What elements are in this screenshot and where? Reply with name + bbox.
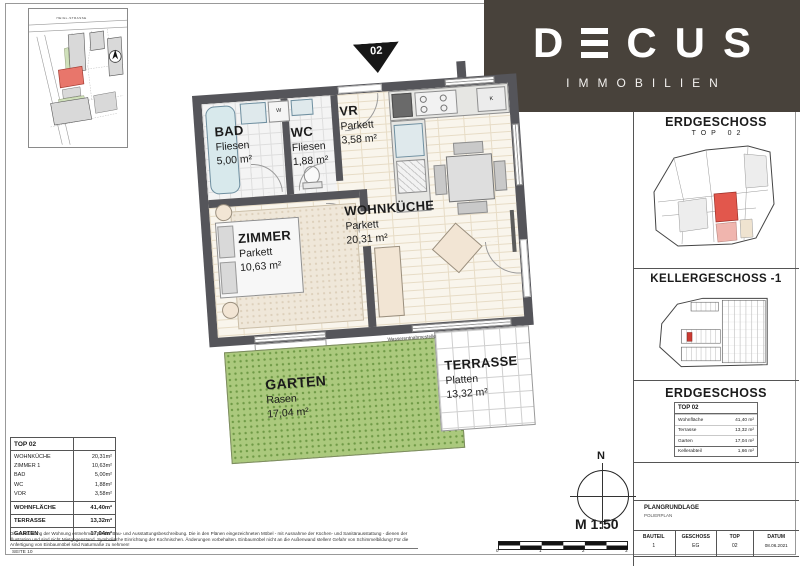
field-value: 02	[717, 543, 753, 549]
field-label: GESCHOSS	[676, 534, 717, 540]
unit-table-row: Kellerabteil 1,66 m²	[675, 446, 757, 457]
unit-summary-table: TOP 02 Wohnfläche 41,40 m² Terrasse 13,3…	[674, 402, 758, 457]
row-value: 1,66 m²	[738, 449, 754, 456]
wc-area: 1,88 m²	[292, 154, 328, 168]
unit-table-row: Terrasse 13,32 m²	[675, 425, 757, 436]
room-label-bad: BAD Fliesen 5,00 m²	[214, 122, 253, 167]
table-row: ZIMMER 110,63m²	[11, 462, 115, 471]
highlighted-building	[58, 66, 83, 88]
row-label: BAD	[14, 471, 25, 480]
sidebar-section3-title: ERDGESCHOSS	[633, 386, 799, 400]
unit-number: 02	[370, 45, 383, 58]
sofa	[374, 246, 405, 318]
bed-pillow	[217, 225, 235, 258]
washer-label: W	[276, 108, 282, 114]
burner-icon	[440, 104, 447, 111]
unit-table-row: Garten 17,04 m²	[675, 435, 757, 446]
washing-machine: W	[268, 100, 290, 122]
room-label-terrasse: TERRASSE Platten 13,32 m²	[444, 353, 520, 401]
dishwasher	[396, 159, 427, 194]
field-value: 08.06.2021	[754, 543, 799, 548]
table-row: BAD5,00m²	[11, 471, 115, 480]
garten-area: 17,04 m²	[267, 404, 329, 420]
area-table-divider	[73, 438, 74, 540]
scale-label: M 1:50	[575, 516, 619, 532]
dining-chair	[453, 141, 484, 155]
sidebar-section1-title: ERDGESCHOSS	[633, 115, 799, 129]
unit-table-row: Wohnfläche 41,40 m²	[675, 414, 757, 425]
stove	[414, 90, 458, 117]
fridge-label: K	[489, 96, 493, 102]
bad-name: BAD	[214, 122, 251, 139]
north-label: N	[597, 450, 605, 462]
table-row: VOR3,58m²	[11, 490, 115, 499]
scale-bar	[498, 537, 628, 555]
scale-tick: 1	[539, 548, 542, 553]
brand-letter-d: D	[533, 22, 563, 64]
sidebar-line-1	[633, 268, 799, 269]
scale-tick: 3	[625, 548, 628, 553]
brand-letter-c: C	[626, 22, 656, 64]
room-label-vr: VR Parkett 3,58 m²	[339, 101, 378, 146]
unit-table-header: TOP 02	[675, 403, 757, 414]
row-label: Garten	[678, 439, 693, 446]
kitchen-sink	[394, 123, 425, 158]
total-value: 13,32m²	[90, 515, 112, 527]
row-label: Kellerabteil	[678, 449, 702, 456]
row-label: Wohnfläche	[678, 418, 703, 425]
zimmer-name: ZIMMER	[238, 227, 292, 246]
compass-horizontal-line	[570, 496, 636, 497]
field-datum: DATUM 08.06.2021	[753, 530, 799, 556]
brand-letter-s: S	[723, 22, 751, 64]
dining-table	[446, 153, 495, 202]
scale-tick: 0	[496, 548, 499, 553]
row-value: 1,88m²	[95, 481, 112, 490]
sidebar-divider	[633, 112, 634, 566]
dining-chair	[433, 164, 447, 195]
row-value: 20,31m²	[92, 453, 112, 462]
terrace: TERRASSE Platten 13,32 m²	[434, 325, 536, 431]
room-label-wohnkueche: WOHNKÜCHE Parkett 20,31 m²	[344, 197, 437, 246]
neighbor-wall-stub	[456, 61, 466, 78]
field-value: EG	[676, 543, 717, 549]
street-label: HEIGL-STRASSE	[56, 16, 86, 20]
area-summary-table: TOP 02 WOHNKÜCHE20,31m² ZIMMER 110,63m² …	[10, 437, 116, 541]
table-total-row: WOHNFLÄCHE41,40m²	[11, 501, 115, 514]
brand-logo: D C U S	[533, 22, 751, 64]
row-value: 17,04 m²	[735, 439, 754, 446]
fridge: K	[476, 86, 507, 112]
terrasse-area: 13,32 m²	[446, 384, 520, 401]
site-location-map: HEIGL-STRASSE	[28, 8, 128, 148]
row-label: Terrasse	[678, 428, 696, 435]
wc-name: WC	[290, 123, 327, 140]
zimmer-floor-type: Parkett	[239, 244, 293, 260]
bathroom-sink	[240, 102, 267, 125]
field-value: 1	[633, 543, 675, 549]
row-value: 10,63m²	[92, 462, 112, 471]
plan-subtitle: POLIERPLAN	[644, 513, 699, 518]
vr-name: VR	[339, 101, 376, 118]
wc-sink	[291, 99, 314, 116]
row-label: WC	[14, 481, 23, 490]
vr-floor-type: Parkett	[340, 118, 376, 132]
wc-floor-type: Fliesen	[291, 140, 327, 154]
bad-area: 5,00 m²	[216, 153, 252, 167]
burner-icon	[420, 106, 427, 113]
sidebar-line-3	[633, 462, 799, 463]
title-block-fields: BAUTEIL 1 GESCHOSS EG TOP 02 DATUM 08.06…	[633, 530, 799, 556]
field-label: DATUM	[754, 534, 799, 540]
highlighted-cellar-unit	[687, 332, 692, 341]
row-value: 13,32 m²	[735, 428, 754, 435]
highlighted-unit-top02	[714, 192, 738, 222]
disclaimer-text: Die Ausstattung der Wohnung entnehmen Si…	[10, 531, 418, 548]
kellergeschoss-mini-plan	[652, 290, 774, 379]
vr-area: 3,58 m²	[341, 132, 377, 146]
room-label-zimmer: ZIMMER Parkett 10,63 m²	[238, 227, 294, 274]
disclaimer-separator	[10, 548, 418, 549]
row-label: VOR	[14, 490, 26, 499]
total-label: TERRASSE	[14, 515, 46, 527]
sidebar-line-4	[633, 500, 799, 501]
field-label: TOP	[717, 534, 753, 540]
sidebar-line-6	[633, 556, 799, 557]
site-map-graphic: HEIGL-STRASSE	[29, 9, 127, 147]
sidebar-line-2	[633, 380, 799, 381]
sidebar-section1-subtitle: TOP 02	[633, 130, 799, 137]
field-geschoss: GESCHOSS EG	[675, 530, 717, 556]
bad-floor-type: Fliesen	[215, 139, 251, 153]
row-value: 41,40 m²	[735, 418, 754, 425]
floor-plan: 02 W K	[192, 72, 557, 467]
field-label: BAUTEIL	[633, 534, 675, 540]
erdgeschoss-mini-plan	[648, 142, 783, 265]
plan-title: PLANGRUNDLAGE	[644, 505, 699, 511]
room-label-wc: WC Fliesen 1,88 m²	[290, 123, 329, 168]
scale-tick: 2	[582, 548, 585, 553]
field-bauteil: BAUTEIL 1	[633, 530, 675, 556]
row-label: WOHNKÜCHE	[14, 453, 51, 462]
room-label-garten: GARTEN Rasen 17,04 m²	[265, 372, 329, 420]
brand-letter-u: U	[675, 22, 705, 64]
row-value: 3,58m²	[95, 490, 112, 499]
brand-subtitle: IMMOBILIEN	[557, 76, 727, 90]
stylized-letter-e-icon	[581, 28, 608, 58]
garden: GARTEN Rasen 17,04 m²	[224, 336, 465, 464]
table-row: WOHNKÜCHE20,31m²	[11, 453, 115, 462]
garten-name: GARTEN	[265, 372, 327, 392]
total-label: WOHNFLÄCHE	[14, 502, 56, 514]
sidebar-section2-title: KELLERGESCHOSS -1	[633, 273, 799, 285]
dining-chair	[493, 160, 507, 191]
table-total-row: TERRASSE13,32m²	[11, 514, 115, 527]
field-top: TOP 02	[716, 530, 753, 556]
bed-pillow	[220, 261, 238, 294]
oven	[391, 93, 413, 118]
table-row: WC1,88m²	[11, 481, 115, 490]
area-table-header: TOP 02	[11, 438, 115, 451]
burner-icon	[420, 96, 427, 103]
plan-titleblock-heading: PLANGRUNDLAGE POLIERPLAN	[644, 505, 699, 518]
dining-chair	[457, 201, 488, 215]
area-table-rooms: WOHNKÜCHE20,31m² ZIMMER 110,63m² BAD5,00…	[11, 451, 115, 501]
row-value: 5,00m²	[95, 471, 112, 480]
row-label: ZIMMER 1	[14, 462, 40, 471]
page-number: SEITE 10	[12, 550, 33, 555]
burner-icon	[440, 94, 447, 101]
total-value: 41,40m²	[90, 502, 112, 514]
